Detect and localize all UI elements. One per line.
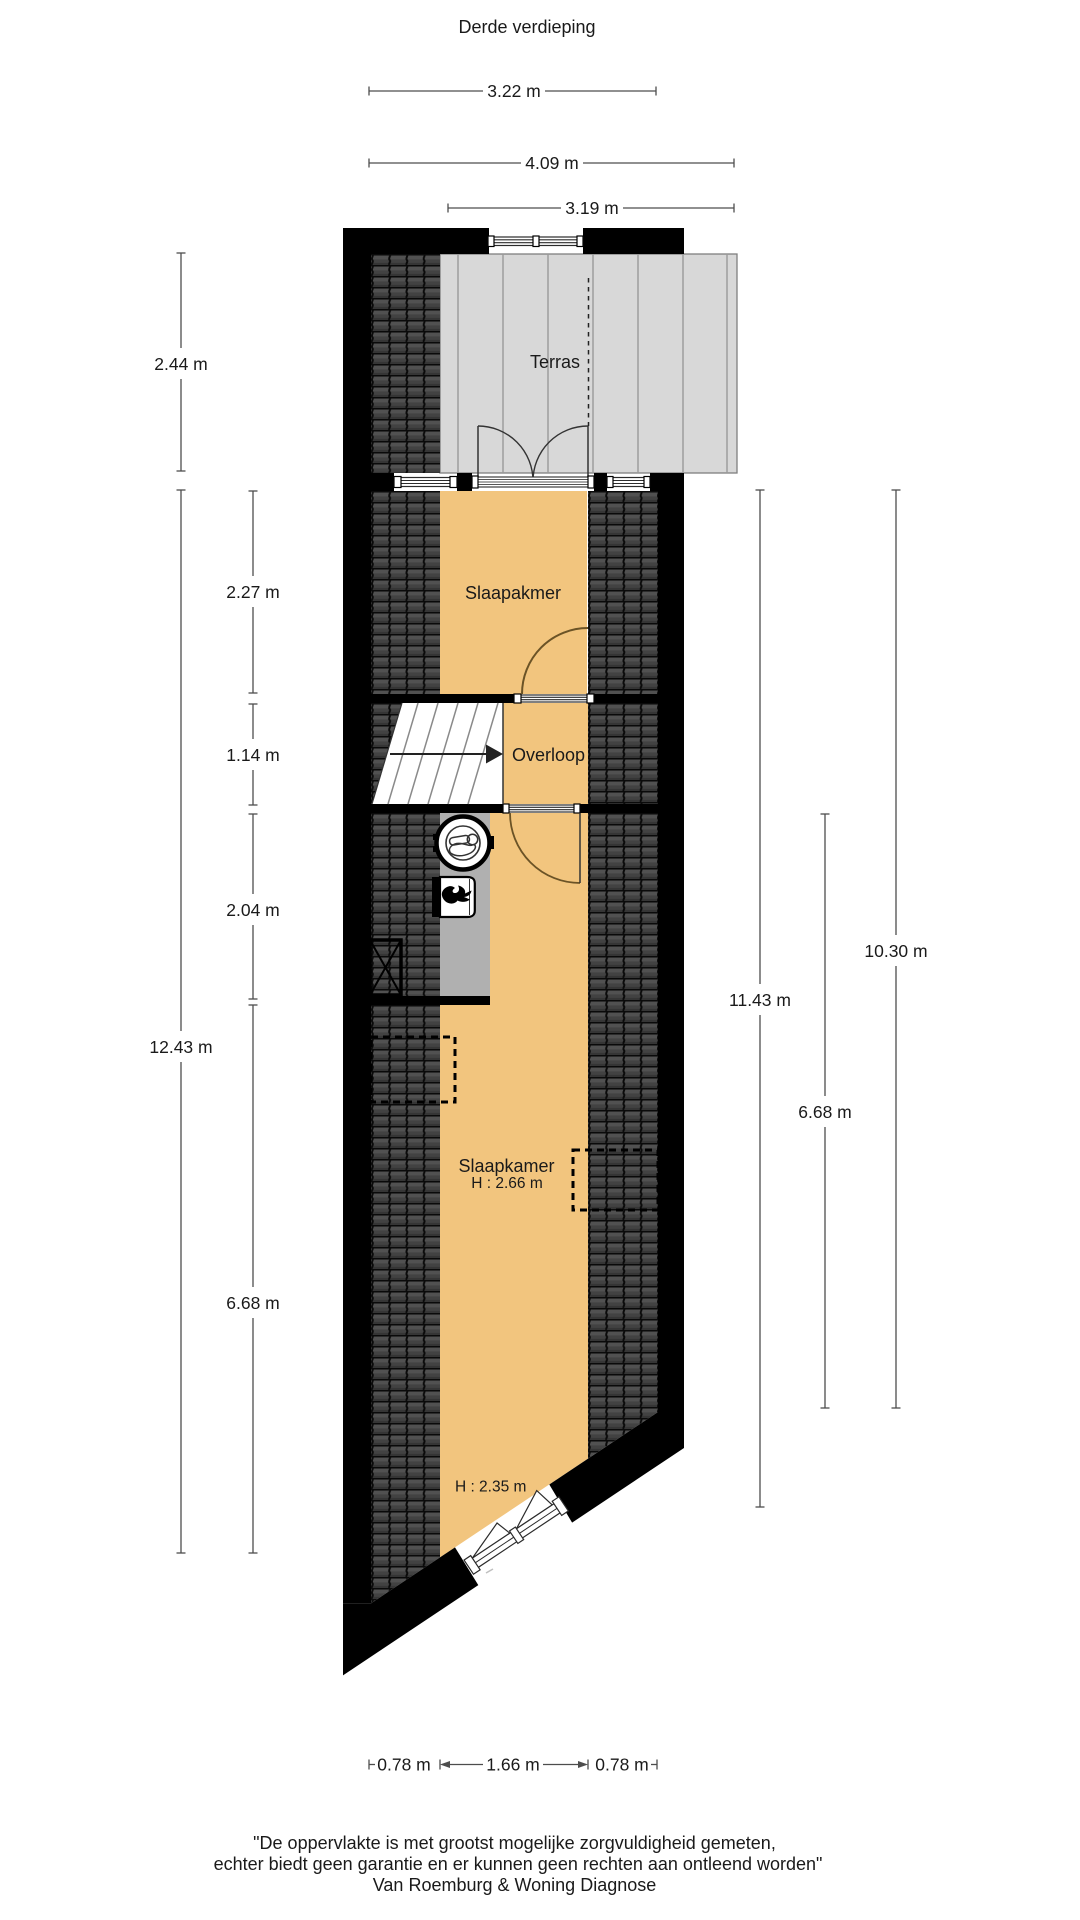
- svg-text:echter biedt geen garantie en: echter biedt geen garantie en er kunnen …: [214, 1854, 823, 1874]
- svg-text:Derde verdieping: Derde verdieping: [458, 17, 595, 37]
- svg-text:2.27 m: 2.27 m: [226, 582, 280, 602]
- svg-text:H : 2.35 m: H : 2.35 m: [455, 1479, 527, 1496]
- svg-text:Slaapkamer: Slaapkamer: [458, 1156, 554, 1176]
- svg-text:Van Roemburg & Woning Diagnose: Van Roemburg & Woning Diagnose: [373, 1875, 657, 1895]
- svg-text:6.68 m: 6.68 m: [226, 1293, 280, 1313]
- svg-text:H : 2.66 m: H : 2.66 m: [471, 1175, 543, 1192]
- svg-text:0.78 m: 0.78 m: [595, 1755, 649, 1775]
- svg-text:3.22 m: 3.22 m: [487, 81, 541, 101]
- svg-text:Terras: Terras: [530, 352, 580, 372]
- svg-text:4.09 m: 4.09 m: [525, 153, 579, 173]
- svg-text:2.44 m: 2.44 m: [154, 354, 208, 374]
- svg-text:2.04 m: 2.04 m: [226, 900, 280, 920]
- svg-text:Overloop: Overloop: [512, 745, 585, 765]
- svg-text:1.66 m: 1.66 m: [486, 1755, 540, 1775]
- svg-text:12.43 m: 12.43 m: [149, 1037, 212, 1057]
- svg-text:6.68 m: 6.68 m: [798, 1102, 852, 1122]
- svg-text:"De oppervlakte is met grootst: "De oppervlakte is met grootst mogelijke…: [253, 1833, 776, 1853]
- svg-text:10.30 m: 10.30 m: [864, 941, 927, 961]
- svg-text:1.14 m: 1.14 m: [226, 745, 280, 765]
- svg-text:0.78 m: 0.78 m: [377, 1755, 431, 1775]
- svg-text:11.43 m: 11.43 m: [729, 990, 791, 1010]
- svg-text:3.19 m: 3.19 m: [565, 198, 619, 218]
- svg-text:Slaapakmer: Slaapakmer: [465, 583, 561, 603]
